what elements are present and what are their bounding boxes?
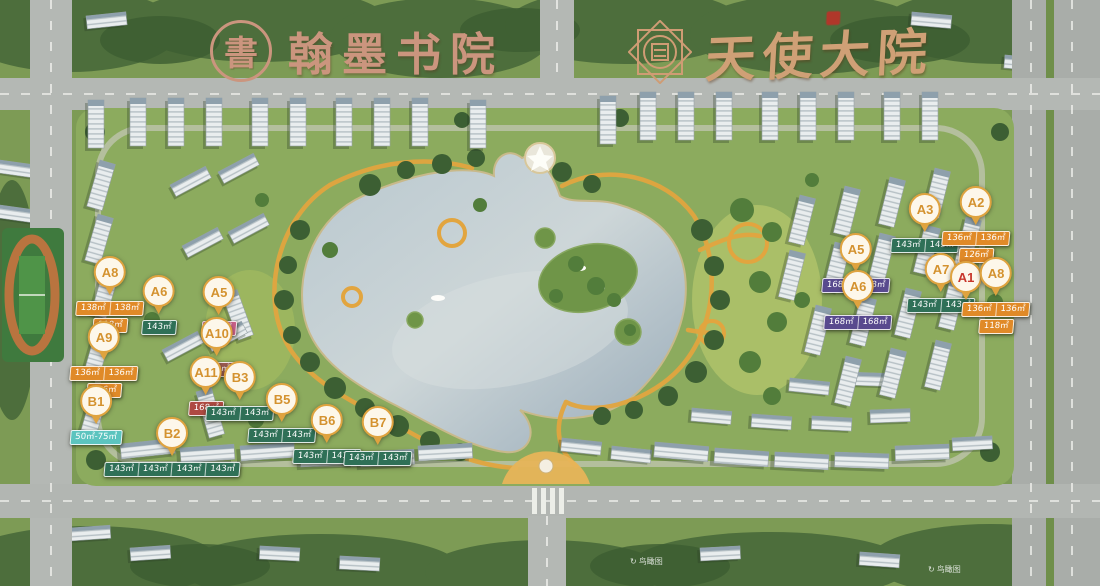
building-marker-label: A9	[88, 321, 120, 353]
area-tag: 138㎡	[109, 302, 144, 315]
marker-pin-icon	[235, 391, 245, 405]
project-logo-west: 書 翰墨书院	[210, 18, 504, 83]
building-area-tags: 168㎡168㎡	[824, 315, 892, 330]
area-tag-row: 168㎡168㎡	[823, 315, 893, 330]
area-tag-row: 136㎡136㎡	[961, 302, 1031, 317]
marker-pin-icon	[154, 305, 164, 319]
building-marker-label: B2	[156, 417, 188, 449]
building-marker-label: B7	[362, 406, 394, 438]
area-tag: 136㎡	[975, 232, 1010, 245]
project-name-west: 翰墨书院	[288, 18, 504, 83]
area-tag: 168㎡	[824, 316, 858, 329]
marker-pin-icon	[936, 283, 946, 297]
building-marker-label: A5	[203, 276, 235, 308]
masterplan-aerial-render: 書 翰墨书院 天使大院 A8 138㎡138㎡118㎡ A6	[0, 0, 1100, 586]
building-area-tags: 143㎡	[142, 320, 177, 335]
area-tag: 138㎡	[76, 302, 110, 315]
area-tag: 143㎡	[377, 452, 412, 465]
watermark-text: 鸟瞰图	[937, 564, 961, 575]
project-name-east-text: 天使大院	[704, 24, 935, 88]
watermark: ↻ 鸟瞰图	[630, 556, 663, 567]
refresh-icon: ↻	[928, 565, 935, 574]
marker-pin-icon	[971, 216, 981, 230]
area-tag: 118㎡	[979, 320, 1013, 333]
watermark: ↻ 鸟瞰图	[928, 564, 961, 575]
building-marker-label: A2	[960, 186, 992, 218]
area-tag: 143㎡	[171, 463, 206, 476]
marker-pin-icon	[853, 300, 863, 314]
building-area-tags: 143㎡143㎡143㎡143㎡	[104, 462, 240, 477]
building-markers-layer: A8 138㎡138㎡118㎡ A6 143㎡ A5 140㎡ A9 136㎡1…	[0, 0, 1100, 586]
lattice-emblem-icon	[628, 20, 692, 84]
area-tag: 143㎡	[907, 299, 941, 312]
building-marker-B2[interactable]: B2 143㎡143㎡143㎡143㎡	[104, 417, 240, 477]
building-marker-A6-east[interactable]: A6 168㎡168㎡	[824, 270, 892, 330]
area-tag: 143㎡	[248, 429, 282, 442]
building-marker-label: A8	[94, 256, 126, 288]
area-tag: 143㎡	[344, 452, 378, 465]
area-tag: 136㎡	[103, 367, 138, 380]
refresh-icon: ↻	[630, 557, 637, 566]
marker-pin-icon	[277, 413, 287, 427]
project-name-east: 天使大院	[704, 12, 936, 92]
building-marker-label: A5	[840, 233, 872, 265]
area-tag: 143㎡	[293, 450, 327, 463]
area-tag-row: 136㎡136㎡	[941, 231, 1011, 246]
area-tag-row: 143㎡143㎡	[343, 451, 413, 466]
area-tag: 143㎡	[137, 463, 172, 476]
area-tag: 143㎡	[142, 321, 176, 334]
building-marker-label: B6	[311, 404, 343, 436]
building-marker-label: A3	[909, 193, 941, 225]
area-tag-row: 138㎡138㎡	[75, 301, 145, 316]
area-tag-row: 136㎡136㎡	[69, 366, 139, 381]
project-logo-east: 天使大院	[628, 16, 934, 88]
area-tag: 143㎡	[104, 463, 138, 476]
building-marker-label: B1	[80, 385, 112, 417]
calligraphy-seal-icon: 書	[210, 20, 272, 82]
area-tag: 136㎡	[942, 232, 976, 245]
building-marker-A8-east[interactable]: A8 136㎡136㎡118㎡	[962, 257, 1030, 335]
red-seal-icon	[826, 11, 840, 24]
marker-pin-icon	[920, 223, 930, 237]
marker-pin-icon	[991, 287, 1001, 301]
area-tag: 143㎡	[891, 239, 925, 252]
building-area-tags: 136㎡136㎡118㎡	[962, 302, 1030, 335]
building-marker-label: A10	[201, 317, 233, 349]
area-tag: 143㎡	[205, 463, 240, 476]
building-marker-label: A8	[980, 257, 1012, 289]
marker-pin-icon	[373, 436, 383, 450]
building-marker-label: A6	[143, 275, 175, 307]
area-tag: 168㎡	[857, 316, 892, 329]
area-tag-row: 143㎡143㎡143㎡143㎡	[103, 462, 240, 477]
area-tag-row: 143㎡	[141, 320, 177, 335]
area-tag: 136㎡	[70, 367, 104, 380]
marker-pin-icon	[99, 351, 109, 365]
marker-pin-icon	[105, 286, 115, 300]
area-tag: 136㎡	[962, 303, 996, 316]
building-marker-A6-west[interactable]: A6 143㎡	[142, 275, 177, 335]
marker-pin-icon	[322, 434, 332, 448]
area-tag-row: 118㎡	[978, 319, 1014, 334]
marker-pin-icon	[91, 415, 101, 429]
area-tag: 136㎡	[995, 303, 1030, 316]
building-area-tags: 143㎡143㎡	[344, 451, 412, 466]
building-marker-label: A6	[842, 270, 874, 302]
seal-character: 書	[224, 26, 258, 75]
building-marker-B7[interactable]: B7 143㎡143㎡	[344, 406, 412, 466]
marker-pin-icon	[167, 447, 177, 461]
watermark-text: 鸟瞰图	[639, 556, 663, 567]
